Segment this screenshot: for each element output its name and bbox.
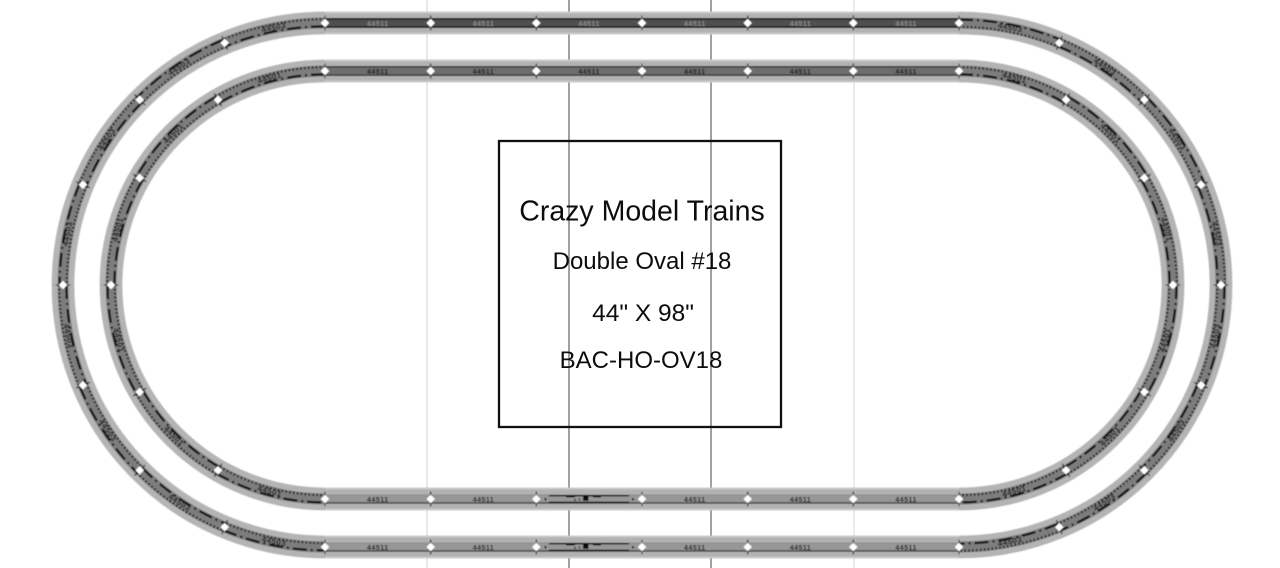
svg-text:44511: 44511	[367, 69, 389, 76]
svg-text:Double Oval #18: Double Oval #18	[553, 248, 732, 275]
svg-text:44511: 44511	[684, 545, 706, 552]
svg-text:44511: 44511	[473, 69, 495, 76]
svg-text:44511: 44511	[895, 497, 917, 504]
svg-text:BAC-HO-OV18: BAC-HO-OV18	[560, 347, 723, 374]
svg-text:44511: 44511	[895, 21, 917, 28]
svg-text:44511: 44511	[790, 497, 812, 504]
svg-text:44511: 44511	[367, 21, 389, 28]
svg-text:44511: 44511	[473, 497, 495, 504]
svg-text:44511: 44511	[578, 21, 600, 28]
svg-text:44511: 44511	[367, 497, 389, 504]
svg-text:44511: 44511	[790, 69, 812, 76]
svg-text:Crazy Model Trains: Crazy Model Trains	[519, 196, 765, 228]
svg-text:44511: 44511	[578, 69, 600, 76]
svg-text:44511: 44511	[684, 21, 706, 28]
svg-text:44511: 44511	[473, 21, 495, 28]
svg-text:44" X 98": 44" X 98"	[592, 300, 694, 327]
svg-text:44511: 44511	[367, 545, 389, 552]
svg-text:44511: 44511	[790, 21, 812, 28]
svg-text:44511: 44511	[895, 69, 917, 76]
svg-text:44511: 44511	[684, 69, 706, 76]
svg-text:44511: 44511	[790, 545, 812, 552]
svg-text:44511: 44511	[473, 545, 495, 552]
svg-text:44511: 44511	[684, 497, 706, 504]
svg-text:44511: 44511	[895, 545, 917, 552]
